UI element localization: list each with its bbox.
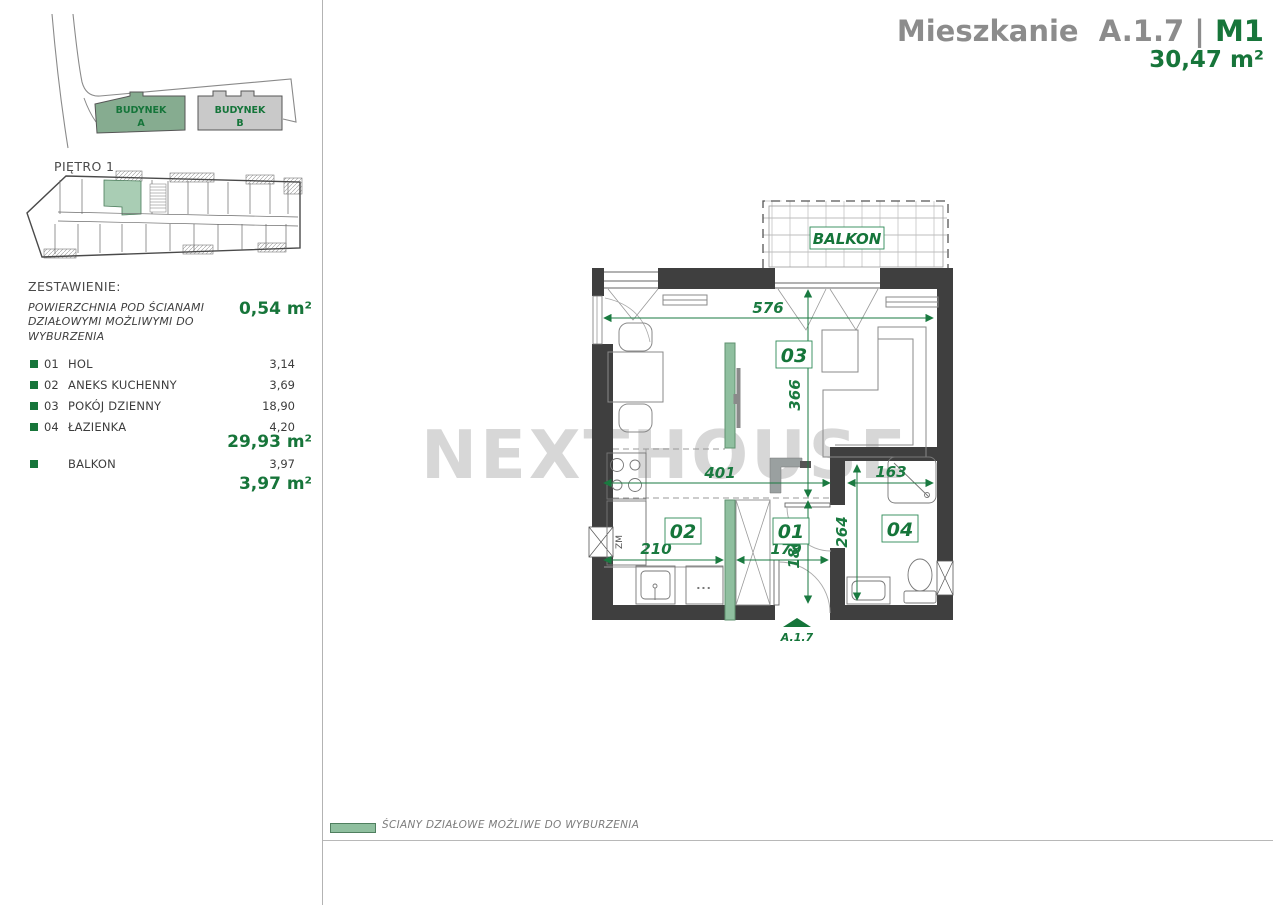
room-name: BALKON [68,457,116,471]
dim-576: 576 [752,299,783,317]
entrance-label: A.1.7 [780,631,814,644]
balcony-total: 3,97 m² [239,474,312,494]
legend-label: ŚCIANY DZIAŁOWE MOŻLIWE DO WYBURZENIA [382,819,639,831]
door-hinge-block [800,461,811,468]
building-a-letter: A [137,118,145,129]
window-left [593,296,650,344]
dishwasher-label: ZM [615,535,625,549]
building-b: BUDYNEK B [198,91,282,130]
building-a: BUDYNEK A [95,92,185,133]
summary-note: POWIERZCHNIA POD ŚCIANAMI DZIAŁOWYMI MOŻ… [28,301,233,344]
rooms-total: 29,93 m² [227,432,312,452]
living-room-furniture [608,295,938,457]
kitchen-sink [636,566,675,604]
window-top [604,272,658,288]
apartment-number: Mieszkanie A.1.7 | [897,14,1215,48]
floor-walls [55,179,288,254]
chair [619,323,652,351]
room-name: ANEKS KUCHENNY [68,378,177,392]
room-row-pokoj: 03 POKÓJ DZIENNY 18,90 [0,399,323,419]
floor-corridor [58,212,298,226]
dining-table [608,352,663,402]
building-b-label: BUDYNEK [215,105,266,116]
room-number: 03 [44,399,59,413]
drawer-dots: ... [696,579,712,592]
room-bullet [30,460,38,468]
room-labels: 03 02 01 04 [665,341,918,544]
shaft-left [589,527,613,557]
room-number: 01 [44,357,59,371]
apartment-floor-plan: BALKON [575,185,975,650]
room-label-bath: 04 [887,519,913,541]
room-bullet [30,360,38,368]
dim-264: 264 [833,516,851,547]
apartment-header: Mieszkanie A.1.7 | M1 30,47 m² [897,16,1264,73]
room-number: 02 [44,378,59,392]
tv [737,368,741,428]
building-a-label: BUDYNEK [116,105,167,116]
entrance-marker: A.1.7 [780,618,814,644]
shaft-right [937,561,953,595]
room-area: 3,14 [269,357,295,371]
legend-removable-wall-swatch [330,823,376,833]
dim-401: 401 [703,464,735,482]
room-number: 04 [44,420,59,434]
balcony: BALKON [763,201,948,268]
floor-stairwell [150,184,166,212]
room-name: ŁAZIENKA [68,420,126,434]
room-name: POKÓJ DZIENNY [68,399,161,413]
balcony-door [775,283,880,288]
dim-366: 366 [786,379,804,410]
room-area: 3,97 [269,457,295,471]
balcony-label: BALKON [813,230,882,248]
page: Mieszkanie A.1.7 | M1 30,47 m² NEXTHOUSE… [0,0,1280,905]
sofa-cushions [835,339,913,445]
room-row-hol: 01 HOL 3,14 [0,357,323,377]
washer-column [770,458,802,493]
sidebar: BUDYNEK A BUDYNEK B PIĘTRO 1 [0,0,323,905]
chair [619,404,652,432]
apartment-area: 30,47 m² [897,48,1264,72]
site-plan: BUDYNEK A BUDYNEK B [18,8,310,158]
footer-rule [323,840,1273,841]
side-table [822,330,858,372]
toilet [904,591,936,603]
room-area: 18,90 [262,399,295,413]
summary-heading: ZESTAWIENIE: [28,279,121,294]
room-label-hall: 01 [778,521,804,543]
room-label-living: 03 [781,345,807,367]
dim-163: 163 [875,463,906,481]
floor-overview-plan [18,166,310,270]
room-bullet [30,402,38,410]
room-area: 3,69 [269,378,295,392]
room-row-aneks: 02 ANEKS KUCHENNY 3,69 [0,378,323,398]
room-name: HOL [68,357,93,371]
page-title: Mieszkanie A.1.7 | M1 [897,16,1264,46]
summary-note-value: 0,54 m² [239,299,312,319]
room-label-kitchen: 02 [670,521,696,543]
unit-code: M1 [1215,14,1264,48]
highlighted-unit [104,180,141,215]
building-b-letter: B [236,118,243,129]
room-bullet [30,423,38,431]
corner-sofa [823,327,926,457]
room-bullet [30,381,38,389]
